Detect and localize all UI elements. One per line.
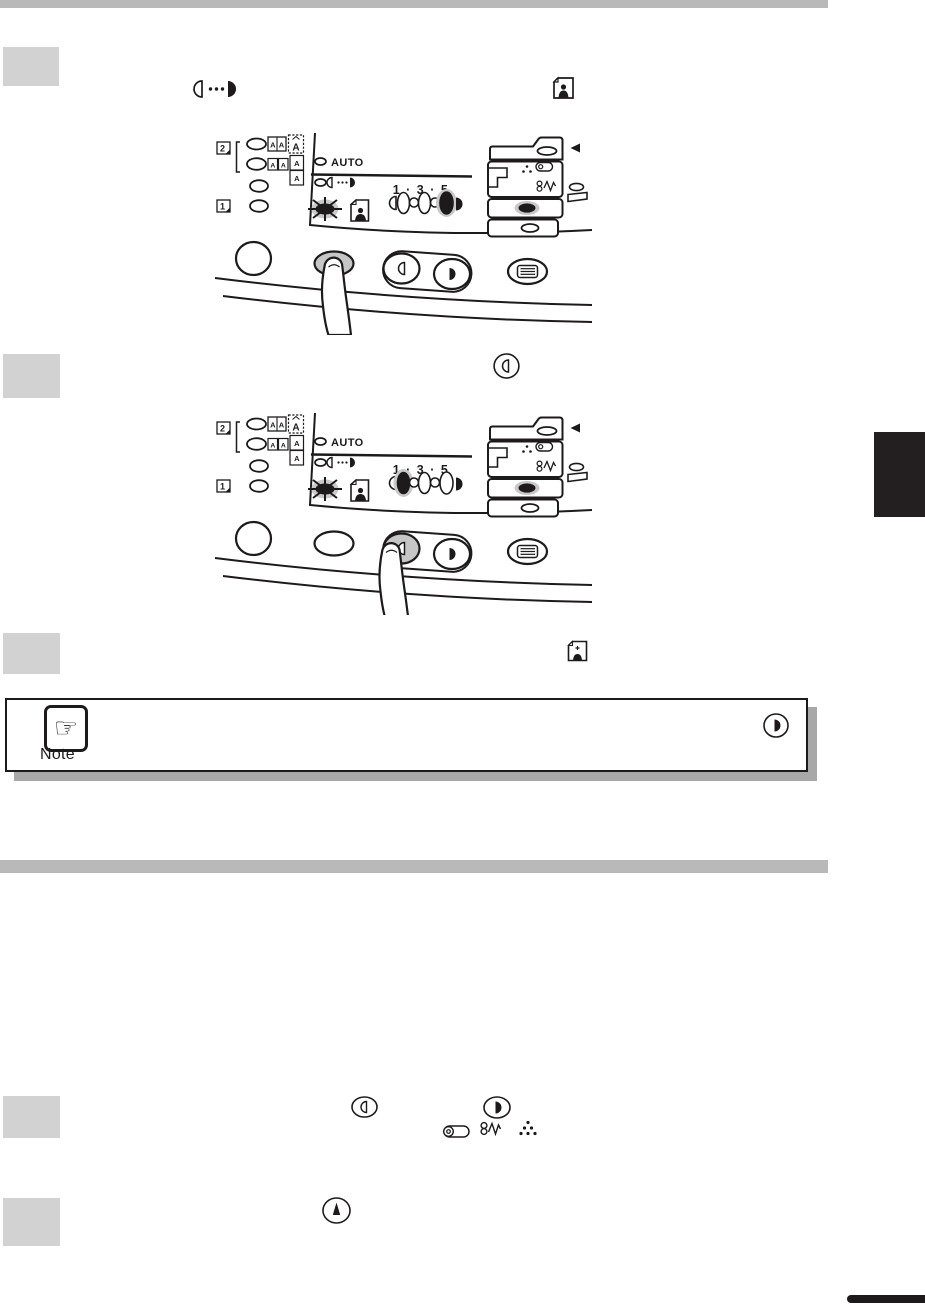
side-led	[570, 463, 584, 470]
section-divider-bar	[0, 860, 828, 873]
photo-mode-icon	[351, 200, 369, 221]
display-select-button	[508, 259, 547, 284]
duplex-badge: 2	[220, 424, 225, 434]
step-4-number-box	[3, 1096, 60, 1138]
display-select-button	[508, 539, 547, 564]
svg-text:A: A	[292, 143, 299, 154]
mode-led	[247, 139, 266, 150]
printer-status-indicators	[488, 418, 587, 517]
up-button-icon	[322, 1197, 351, 1224]
manual-exposure-led	[315, 179, 326, 186]
chapter-index-tab	[874, 432, 925, 517]
exposure-lit-indicator	[308, 477, 342, 501]
photo-mode-icon	[351, 480, 369, 501]
tray-led	[522, 504, 539, 512]
svg-text:A: A	[279, 421, 285, 430]
original-mode-indicators: 2 A A A A A A A 1	[217, 415, 304, 492]
svg-text:A: A	[281, 163, 286, 170]
svg-text:A: A	[294, 439, 300, 448]
mode-led	[250, 480, 268, 492]
misfeed-icon	[479, 1118, 503, 1139]
page-footer-bar	[847, 1295, 925, 1303]
pointing-hand-icon: ☞	[44, 705, 88, 752]
arrow-left-icon	[571, 144, 581, 153]
mode-led	[250, 200, 268, 212]
lighten-button-icon	[493, 353, 520, 379]
mode-led	[247, 419, 266, 430]
copier-panel-illustration-step1: 2 A A A A A A A 1 AUTO	[200, 120, 640, 335]
svg-text:A: A	[279, 141, 285, 150]
svg-text:A: A	[270, 421, 276, 430]
photo-mode-icon	[551, 76, 576, 100]
svg-text:A: A	[294, 174, 300, 183]
exposure-display: AUTO 1 · 3 · 5	[308, 437, 472, 501]
mode-led	[247, 158, 266, 170]
toner-dots-icon	[517, 1119, 539, 1138]
copy-quantity-button	[236, 522, 271, 555]
single-badge: 1	[220, 482, 225, 492]
auto-led	[315, 438, 326, 445]
manual-exposure-led	[315, 459, 326, 466]
svg-text:A: A	[281, 443, 286, 450]
bypass-flap	[568, 193, 587, 202]
step-1-number-box	[3, 47, 59, 86]
single-badge: 1	[220, 202, 225, 212]
printer-status-indicators	[488, 138, 587, 237]
duplex-badge: 2	[220, 144, 225, 154]
lit-status-led	[515, 481, 540, 495]
auto-label: AUTO	[331, 157, 364, 169]
svg-text:A: A	[294, 454, 300, 463]
page-top-bar	[0, 0, 828, 8]
darken-button-icon	[763, 713, 789, 738]
arrow-left-icon	[571, 424, 581, 433]
copier-panel-illustration-step2: 2 A A A A A A A 1 AUTO	[200, 400, 640, 615]
auto-label: AUTO	[331, 437, 364, 449]
drum-cartridge-icon	[536, 163, 553, 172]
svg-text:A: A	[270, 163, 275, 170]
side-led	[570, 183, 584, 190]
drum-cartridge-icon	[536, 443, 553, 452]
bypass-flap	[568, 473, 587, 482]
step-3-number-box	[3, 633, 60, 674]
exposure-mode-button	[315, 532, 354, 556]
note-box: ☞ Note	[5, 698, 808, 772]
exposure-scale	[390, 469, 463, 497]
drum-cartridge-icon	[440, 1123, 472, 1140]
auto-led	[315, 158, 326, 165]
lighten-button-icon	[351, 1096, 378, 1118]
tray-led	[522, 224, 539, 232]
svg-text:A: A	[292, 423, 299, 434]
exposure-scale	[390, 189, 463, 217]
lighten-button-icon	[399, 263, 405, 275]
mode-led	[247, 438, 266, 450]
lit-status-led	[515, 201, 540, 215]
darken-button-icon	[483, 1096, 511, 1119]
copy-quantity-button	[236, 242, 271, 275]
mode-led	[250, 180, 268, 192]
original-mode-indicators: 2 A A A A A A A 1	[217, 135, 304, 212]
exposure-lit-indicator	[308, 197, 342, 221]
exposure-manual-icon	[327, 178, 355, 188]
note-label: Note	[40, 746, 75, 764]
mode-led	[250, 460, 268, 472]
svg-text:A: A	[270, 141, 276, 150]
exposure-manual-icon	[191, 78, 239, 100]
exposure-manual-icon	[327, 458, 355, 468]
svg-text:A: A	[294, 159, 300, 168]
step-2-number-box	[3, 354, 60, 398]
exposure-display: AUTO 1 · 3 · 5	[308, 157, 472, 221]
svg-text:A: A	[270, 443, 275, 450]
step-5-number-box	[3, 1198, 60, 1246]
photo-mode-icon	[566, 640, 589, 662]
